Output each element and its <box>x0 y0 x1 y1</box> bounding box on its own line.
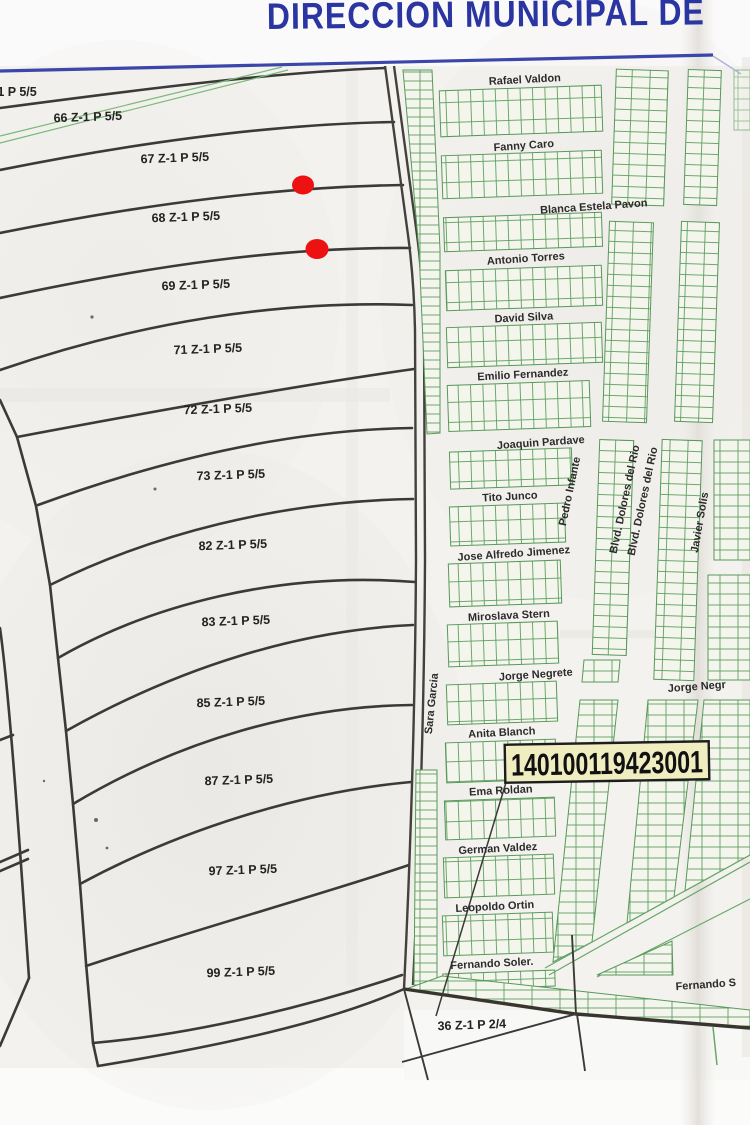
svg-text:67 Z-1 P 5/5: 67 Z-1 P 5/5 <box>140 150 209 166</box>
svg-text:36 Z-1 P 2/4: 36 Z-1 P 2/4 <box>437 1017 506 1033</box>
svg-text:99 Z-1 P 5/5: 99 Z-1 P 5/5 <box>206 964 275 980</box>
svg-text:140100119423001: 140100119423001 <box>511 744 704 782</box>
svg-text:73 Z-1 P 5/5: 73 Z-1 P 5/5 <box>196 467 265 483</box>
svg-text:72 Z-1 P 5/5: 72 Z-1 P 5/5 <box>183 401 252 417</box>
svg-text:87 Z-1 P 5/5: 87 Z-1 P 5/5 <box>204 772 273 788</box>
svg-text:82 Z-1 P 5/5: 82 Z-1 P 5/5 <box>198 537 267 553</box>
svg-text:85 Z-1 P 5/5: 85 Z-1 P 5/5 <box>196 694 265 710</box>
svg-text:1 P 5/5: 1 P 5/5 <box>0 85 37 99</box>
svg-text:71 Z-1 P 5/5: 71 Z-1 P 5/5 <box>173 341 242 357</box>
svg-text:68 Z-1 P 5/5: 68 Z-1 P 5/5 <box>151 209 220 225</box>
svg-text:97 Z-1 P 5/5: 97 Z-1 P 5/5 <box>208 862 277 878</box>
svg-text:DIRECCION MUNICIPAL DE: DIRECCION MUNICIPAL DE <box>267 0 705 37</box>
svg-text:66 Z-1 P 5/5: 66 Z-1 P 5/5 <box>53 109 122 125</box>
svg-text:69 Z-1 P 5/5: 69 Z-1 P 5/5 <box>161 277 230 293</box>
svg-text:83 Z-1 P 5/5: 83 Z-1 P 5/5 <box>201 613 270 629</box>
